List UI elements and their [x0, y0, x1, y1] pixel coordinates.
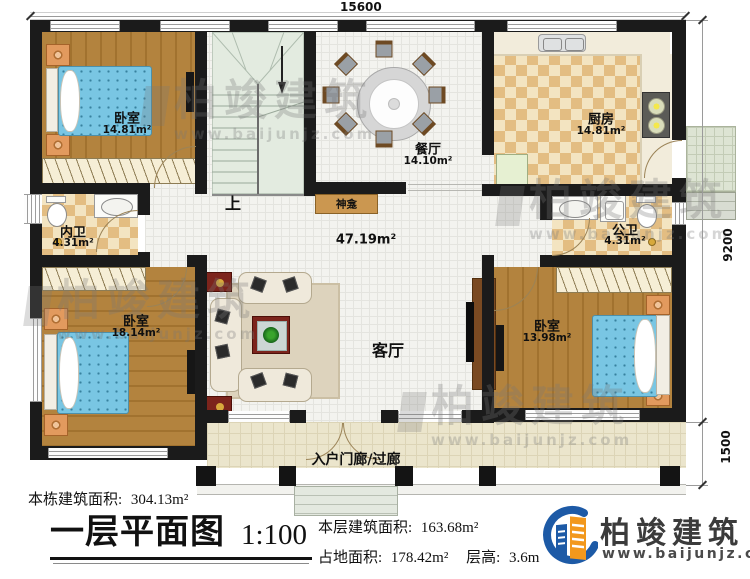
wall-segment — [195, 255, 207, 460]
wall-segment — [672, 178, 686, 202]
room-label-living: 客厅 — [372, 337, 404, 361]
shrine-cabinet: 神龛 — [315, 194, 378, 214]
threshold-line — [408, 190, 482, 191]
room-area-bedroom-tl: 14.81m² — [103, 124, 152, 136]
toilet — [46, 196, 66, 203]
window — [672, 202, 686, 225]
plan-scale: 1:100 — [241, 520, 307, 552]
window — [507, 21, 617, 31]
dimension-top-value: 15600 — [340, 0, 382, 14]
kitchen-sink — [538, 34, 586, 52]
building-total-area-value: 304.13m² — [131, 492, 188, 508]
floor-area-value: 163.68m² — [421, 520, 478, 536]
wall-segment — [482, 255, 494, 420]
room-area-bath-public: 4.31m² — [604, 235, 645, 247]
window — [398, 411, 462, 422]
east-steps — [686, 192, 736, 220]
wall-segment — [462, 410, 494, 423]
title-underline-thin — [53, 563, 309, 564]
wall-segment — [30, 183, 150, 194]
dimension-connector — [686, 485, 708, 486]
wardrobe — [556, 267, 672, 293]
staircase — [212, 32, 304, 194]
nightstand — [46, 44, 70, 66]
room-area-dining: 14.10m² — [404, 155, 453, 167]
porch-column — [279, 466, 296, 486]
dining-chair — [376, 41, 393, 58]
wall-segment — [381, 410, 398, 423]
dimension-line-right — [702, 20, 703, 422]
wall-segment — [304, 182, 406, 194]
bed-headboard — [656, 315, 670, 395]
land-area-row: 占地面积: 178.42m² 层高: 3.6m — [318, 546, 539, 567]
room-label-porch: 入户门廊/过廊 — [311, 449, 400, 469]
wall-segment — [304, 20, 316, 196]
tv-on-wall — [187, 350, 195, 394]
kitchen-stove — [642, 92, 670, 138]
wardrobe — [42, 267, 146, 291]
porch-column — [196, 466, 216, 486]
floor-height-label: 层高: — [466, 550, 500, 566]
land-area-label: 占地面积: — [318, 550, 382, 566]
nightstand — [44, 308, 68, 330]
room-area-bedroom-bl: 18.14m² — [112, 327, 161, 339]
porch-column — [395, 466, 413, 486]
toilet — [636, 196, 656, 203]
window — [228, 411, 290, 422]
sofa-cushion — [215, 344, 230, 359]
end-table-medallion — [216, 279, 224, 287]
wall-segment — [540, 255, 686, 267]
dimension-line-right-lower — [702, 422, 703, 486]
room-area-bath-inner: 4.31m² — [52, 237, 93, 249]
company-logo-icon — [538, 505, 598, 571]
stairs-direction-label: 上 — [225, 190, 241, 214]
dining-chair — [323, 87, 340, 104]
stove-burner — [648, 98, 665, 115]
plan-title: 一层平面图 — [50, 513, 225, 552]
tv-on-wall — [186, 72, 194, 112]
porch-apron — [197, 484, 686, 495]
east-terrace — [686, 126, 736, 192]
sofa-bottom — [238, 368, 312, 402]
dimension-connector — [686, 20, 708, 21]
dimension-right-value: 9200 — [721, 228, 735, 261]
floor-height-value: 3.6m — [509, 550, 539, 566]
wall-segment — [482, 184, 682, 196]
wall-segment — [482, 20, 494, 155]
potted-plant — [263, 327, 279, 343]
bedroom-tl-floor — [42, 32, 195, 158]
washing-machine — [600, 194, 626, 222]
wall-segment — [187, 255, 207, 267]
window — [160, 21, 230, 31]
room-area-bedroom-br: 13.98m² — [523, 332, 572, 344]
bed-pillow — [60, 70, 80, 132]
tv-on-wall — [496, 325, 504, 371]
toilet-bowl — [637, 204, 657, 228]
window — [48, 448, 168, 458]
nightstand — [44, 414, 68, 436]
refrigerator — [496, 154, 528, 188]
wall-segment — [138, 183, 150, 215]
window — [525, 410, 640, 420]
porch-column — [479, 466, 496, 486]
company-website: www.baijunjz.com — [602, 546, 750, 562]
end-table — [206, 272, 232, 292]
dining-chair — [429, 87, 446, 104]
wall-segment — [540, 196, 552, 220]
wall-segment — [30, 255, 147, 267]
wall-segment — [672, 225, 686, 410]
window — [268, 21, 338, 31]
nightstand — [46, 134, 70, 156]
sink-basin — [543, 38, 562, 51]
floor-area: 本层建筑面积: 163.68m² — [318, 516, 478, 537]
sink-basin — [565, 38, 584, 51]
dining-table-center — [388, 98, 400, 110]
coffee-table — [252, 316, 290, 354]
building-total-area: 本栋建筑面积: 304.13m² — [28, 488, 188, 509]
porch-column — [660, 466, 680, 486]
tv-screen — [466, 302, 474, 362]
window — [366, 21, 475, 31]
bed-headboard — [44, 334, 57, 410]
floor-area-label: 本层建筑面积: — [318, 520, 412, 536]
dimension-line-top — [30, 16, 686, 17]
bed-pillow — [634, 319, 656, 393]
wall-segment — [672, 20, 686, 140]
plan-title-row: 一层平面图 1:100 — [50, 513, 307, 552]
sink-basin-oval — [559, 200, 591, 218]
dimension-connector — [686, 422, 708, 423]
living-area-label: 47.19m² — [336, 233, 396, 248]
kitchen-floor — [494, 32, 670, 192]
nightstand — [646, 295, 670, 315]
dimension-porch-depth-value: 1500 — [719, 430, 733, 463]
stove-burner — [648, 117, 665, 134]
porch-floor — [207, 422, 686, 468]
bed-headboard — [46, 68, 58, 132]
bed-pillow — [59, 337, 79, 409]
wall-segment — [290, 410, 306, 423]
threshold-line — [408, 184, 482, 185]
floor-plan: 神龛 柏竣建筑 www.baijunjz.com 柏竣建筑 www.baijun… — [0, 0, 750, 579]
room-area-kitchen: 14.81m² — [577, 125, 626, 137]
floor-drain — [648, 238, 656, 246]
dining-chair — [376, 131, 393, 148]
shrine-label: 神龛 — [336, 197, 357, 212]
wall-segment — [195, 20, 207, 194]
window — [50, 21, 120, 31]
washer-lid — [605, 201, 624, 220]
entry-steps — [294, 486, 398, 516]
land-area-value: 178.42m² — [391, 550, 448, 566]
window — [24, 194, 42, 224]
wall-segment — [197, 410, 228, 423]
title-underline — [50, 557, 312, 560]
building-total-area-label: 本栋建筑面积: — [28, 492, 122, 508]
window — [30, 318, 42, 402]
